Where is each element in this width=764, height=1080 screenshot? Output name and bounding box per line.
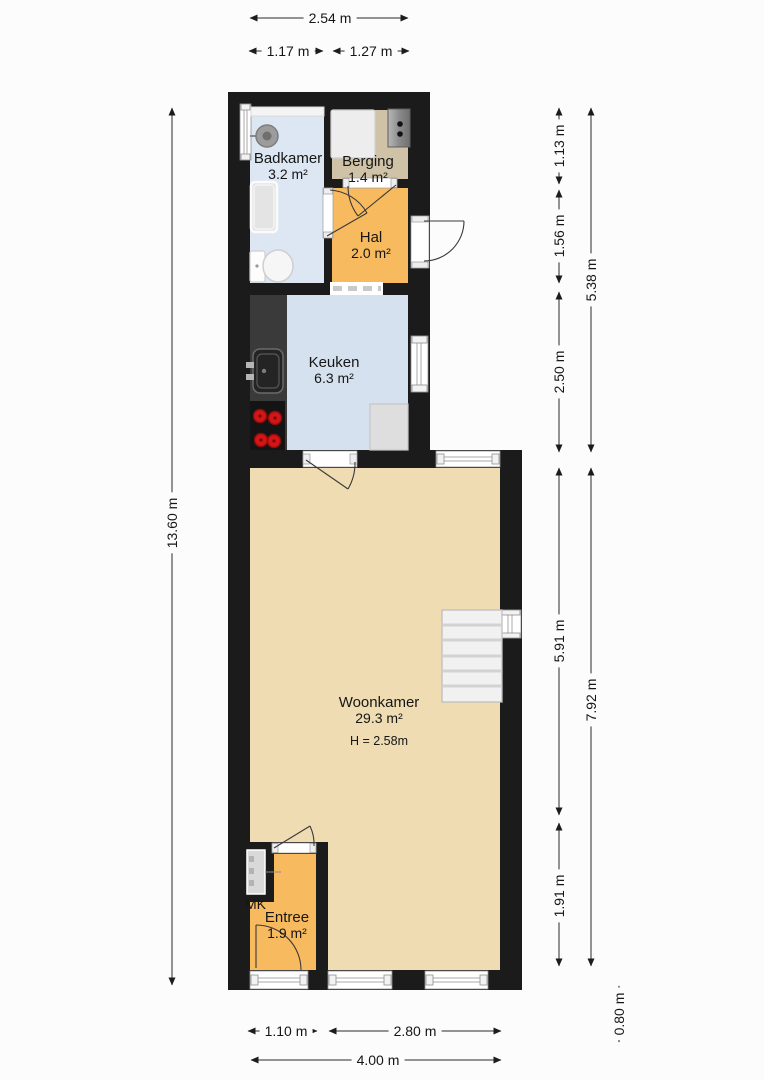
stove-icon — [250, 401, 285, 450]
room-name: Keuken — [309, 354, 360, 371]
room-area: 6.3 m² — [309, 371, 360, 387]
room-label-woonkamer: Woonkamer 29.3 m² H = 2.58m — [339, 694, 420, 748]
dim-label-right-hal: 1.56 m — [551, 210, 567, 263]
room-label-berging: Berging 1.4 m² — [342, 153, 394, 186]
room-label-entree: Entree 1.9 m² — [265, 909, 309, 942]
room-name: Hal — [351, 229, 391, 246]
badkamer-window — [240, 104, 251, 160]
bathroom-shelf — [251, 107, 324, 116]
door-entree-woonkamer — [272, 843, 316, 853]
room-label-keuken: Keuken 6.3 m² — [309, 354, 360, 387]
washing-machine-icon — [331, 110, 375, 158]
shower-icon — [251, 182, 277, 232]
door-badkamer-hal — [323, 188, 333, 238]
dim-label-left-total: 13.60 m — [164, 493, 180, 554]
dim-label-bottom-woonkamer: 2.80 m — [389, 1023, 442, 1039]
dim-label-top-left: 1.17 m — [262, 43, 315, 59]
door-keuken-woonkamer — [303, 451, 357, 467]
room-area: 1.9 m² — [265, 926, 309, 942]
room-name: Woonkamer — [339, 694, 420, 711]
boiler-icon — [388, 109, 410, 147]
dim-label-right-upper-total: 5.38 m — [583, 254, 599, 307]
bottom-window-right — [425, 971, 488, 989]
room-area: 3.2 m² — [254, 167, 322, 183]
dim-label-right-bottom: 0.80 m — [611, 988, 627, 1041]
passage-hal-keuken — [330, 282, 383, 295]
room-name: Berging — [342, 153, 394, 170]
dim-label-right-lower-total: 7.92 m — [583, 674, 599, 727]
door-hal-exterior — [411, 216, 429, 268]
dim-label-right-woonkamer: 5.91 m — [551, 615, 567, 668]
dim-label-bottom-total: 4.00 m — [352, 1052, 405, 1068]
toilet-icon — [250, 250, 293, 282]
room-label-hal: Hal 2.0 m² — [351, 229, 391, 262]
dim-label-top-right: 1.27 m — [345, 43, 398, 59]
room-label-meterkast: MK — [245, 896, 266, 912]
bottom-window-left — [328, 971, 392, 989]
keuken-window — [411, 336, 428, 392]
dim-label-bottom-entree: 1.10 m — [260, 1023, 313, 1039]
woonkamer-top-window — [436, 451, 500, 467]
room-name: Badkamer — [254, 150, 322, 167]
dim-label-right-badkamer: 1.13 m — [551, 120, 567, 173]
stairs-icon — [442, 610, 502, 702]
worktop-icon — [370, 404, 408, 450]
dim-label-top-total: 2.54 m — [304, 10, 357, 26]
floorplan-canvas: 2.54 m 1.17 m 1.27 m 13.60 m 1.13 m 1.56… — [0, 0, 764, 1080]
room-area: 29.3 m² — [339, 711, 420, 727]
dim-label-right-keuken: 2.50 m — [551, 346, 567, 399]
room-name: Entree — [265, 909, 309, 926]
room-area: 2.0 m² — [351, 246, 391, 262]
stairs-window — [501, 610, 521, 638]
dim-label-right-entree: 1.91 m — [551, 870, 567, 923]
room-height: H = 2.58m — [339, 734, 420, 748]
room-area: 1.4 m² — [342, 170, 394, 186]
front-door-opening — [250, 971, 308, 989]
room-label-badkamer: Badkamer 3.2 m² — [254, 150, 322, 183]
